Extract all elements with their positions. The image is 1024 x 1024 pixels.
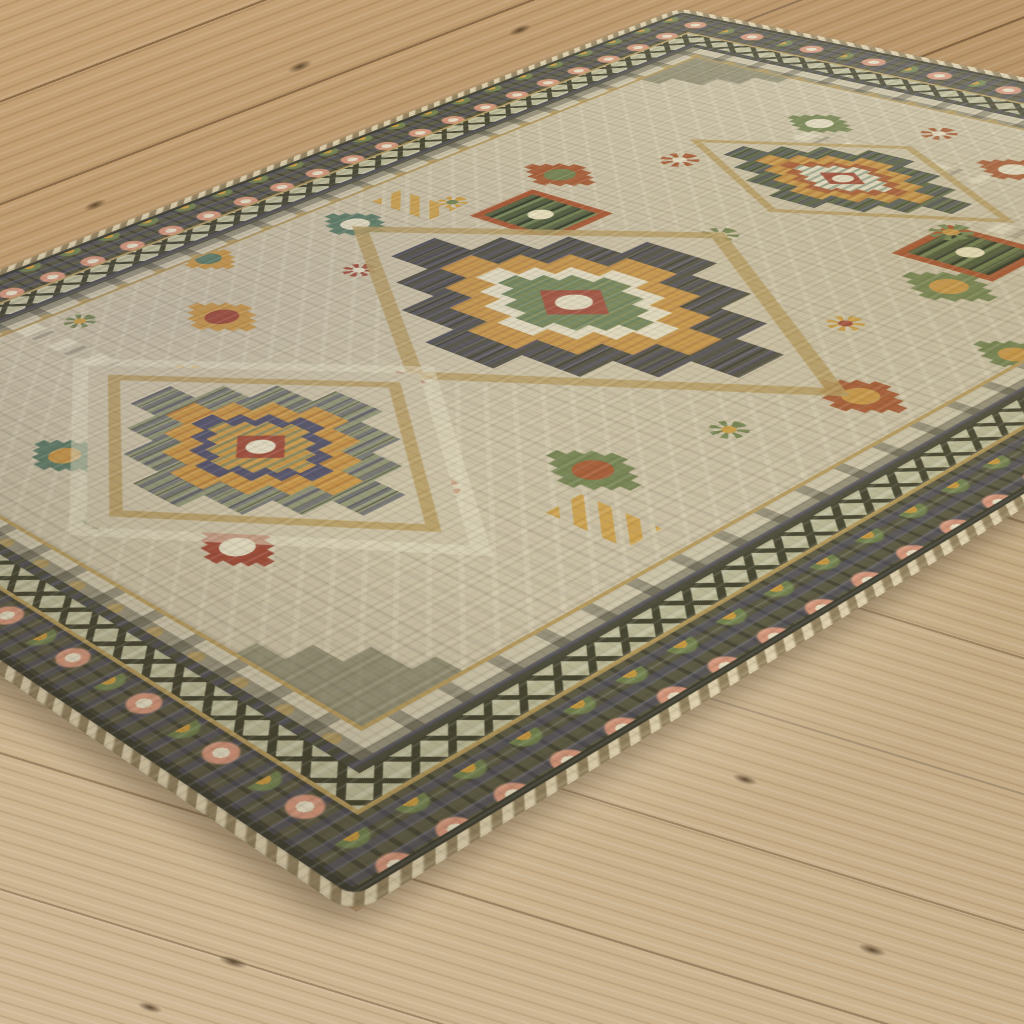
motif-flower-22 xyxy=(700,417,758,442)
motif-flower-26 xyxy=(913,125,965,142)
photograph xyxy=(0,0,1024,1024)
motif-diamond-6 xyxy=(773,109,866,138)
motif-flower-24 xyxy=(819,313,873,334)
motif-hook-37 xyxy=(546,494,662,548)
motif-diamond-4 xyxy=(167,294,277,340)
motif-flower-27 xyxy=(57,311,103,330)
motif-diamond-5 xyxy=(524,439,663,502)
motif-hook-35 xyxy=(372,190,457,220)
motif-diamond-0 xyxy=(507,157,612,193)
motif-flower-15 xyxy=(652,150,708,169)
